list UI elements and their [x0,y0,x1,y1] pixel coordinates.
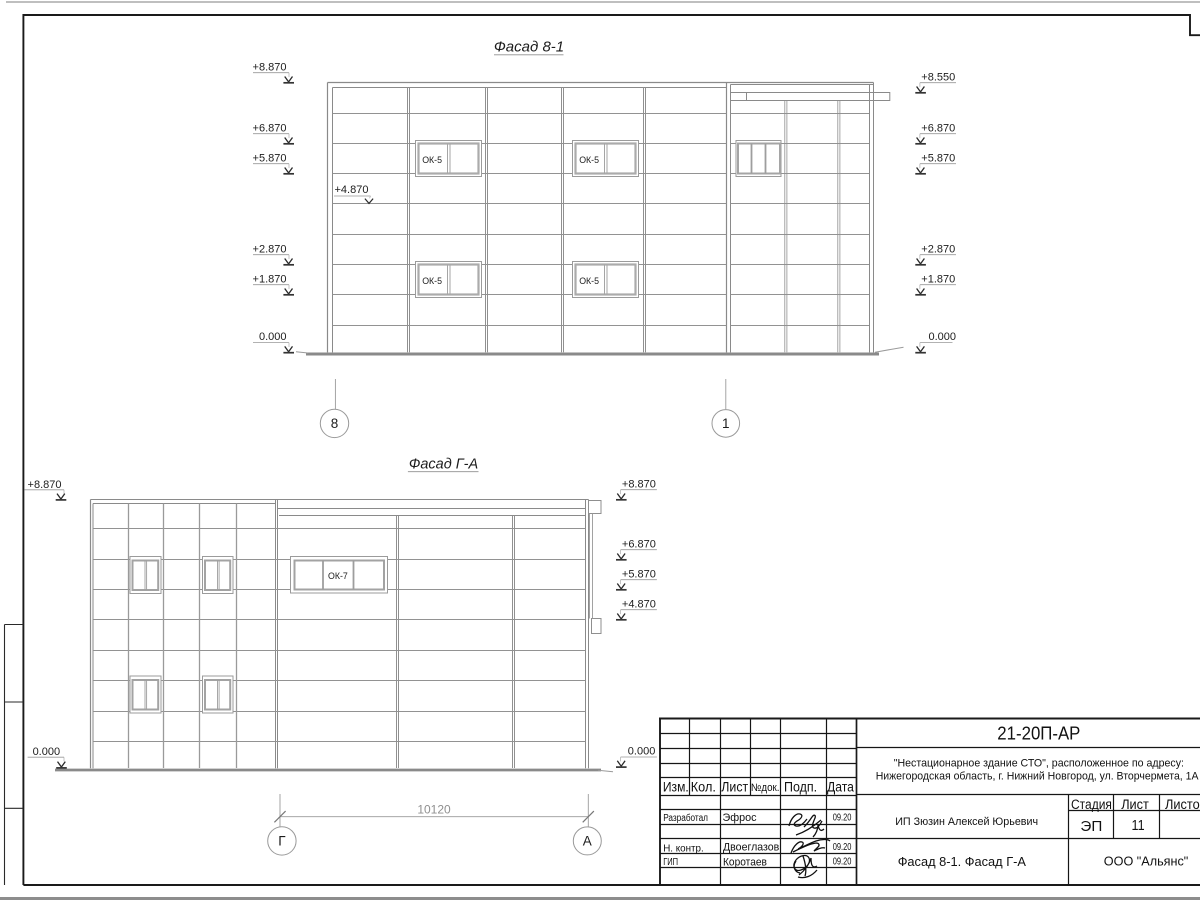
svg-text:11: 11 [1132,817,1145,834]
svg-text:+5.870: +5.870 [921,152,955,164]
svg-text:+6.870: +6.870 [921,122,955,134]
svg-text:10120: 10120 [417,803,451,817]
svg-text:Разработал: Разработал [663,813,708,824]
svg-text:Г: Г [278,834,286,849]
svg-text:1: 1 [722,416,730,431]
svg-text:+2.870: +2.870 [921,243,955,255]
svg-text:8: 8 [331,416,339,431]
svg-text:Двоеглазов: Двоеглазов [723,842,779,854]
svg-text:Кол.: Кол. [691,780,716,796]
svg-text:09.20: 09.20 [833,842,852,853]
svg-text:+8.870: +8.870 [622,478,656,490]
svg-text:Подп.: Подп. [784,780,817,796]
svg-text:ОК-5: ОК-5 [579,155,599,165]
svg-text:0.000: 0.000 [33,746,61,758]
svg-text:+4.870: +4.870 [335,184,369,196]
svg-text:Лист: Лист [721,780,748,796]
svg-text:"Нестационарное здание СТО", р: "Нестационарное здание СТО", расположенн… [894,758,1184,770]
svg-text:09.20: 09.20 [833,857,852,868]
svg-text:Фасад 8-1: Фасад 8-1 [494,39,564,56]
svg-text:+2.870: +2.870 [253,243,287,255]
svg-text:0.000: 0.000 [259,331,287,343]
svg-text:Стадия: Стадия [1071,797,1112,812]
svg-text:+1.870: +1.870 [921,273,955,285]
svg-text:Дата: Дата [827,780,854,796]
svg-text:+1.870: +1.870 [253,273,287,285]
svg-text:ОК-5: ОК-5 [422,276,442,286]
svg-text:+8.870: +8.870 [28,479,62,491]
svg-text:А: А [583,834,592,849]
svg-text:21-20П-АР: 21-20П-АР [997,723,1080,743]
svg-text:Н. контр.: Н. контр. [663,843,704,854]
svg-text:+4.870: +4.870 [622,598,656,610]
svg-text:0.000: 0.000 [929,331,957,343]
svg-text:+8.550: +8.550 [921,71,955,83]
svg-text:+6.870: +6.870 [622,538,656,550]
svg-text:ИП Зюзин Алексей Юрьевич: ИП Зюзин Алексей Юрьевич [895,816,1038,828]
svg-text:ОК-7: ОК-7 [328,571,348,581]
svg-text:ОК-5: ОК-5 [579,276,599,286]
svg-text:Эфрос: Эфрос [723,812,757,824]
svg-text:+6.870: +6.870 [253,122,287,134]
svg-text:ОК-5: ОК-5 [422,155,442,165]
svg-text:0.000: 0.000 [628,746,656,758]
svg-text:+8.870: +8.870 [253,61,287,73]
svg-text:Листов: Листов [1165,797,1200,812]
svg-text:Нижегородская область, г. Нижн: Нижегородская область, г. Нижний Новгоро… [876,771,1199,783]
svg-text:ГИП: ГИП [663,857,678,868]
svg-text:+5.870: +5.870 [253,152,287,164]
svg-text:09.20: 09.20 [833,812,852,823]
svg-text:Изм.: Изм. [663,780,689,796]
svg-text:Фасад Г-А: Фасад Г-А [409,457,478,473]
svg-text:ЭП: ЭП [1080,818,1102,835]
svg-text:Фасад 8-1. Фасад Г-А: Фасад 8-1. Фасад Г-А [898,854,1026,869]
svg-text:ООО "Альянс": ООО "Альянс" [1104,854,1189,869]
svg-text:№док.: №док. [751,782,780,794]
svg-text:Лист: Лист [1121,797,1149,812]
svg-text:Коротаев: Коротаев [723,856,767,868]
svg-text:+5.870: +5.870 [622,568,656,580]
